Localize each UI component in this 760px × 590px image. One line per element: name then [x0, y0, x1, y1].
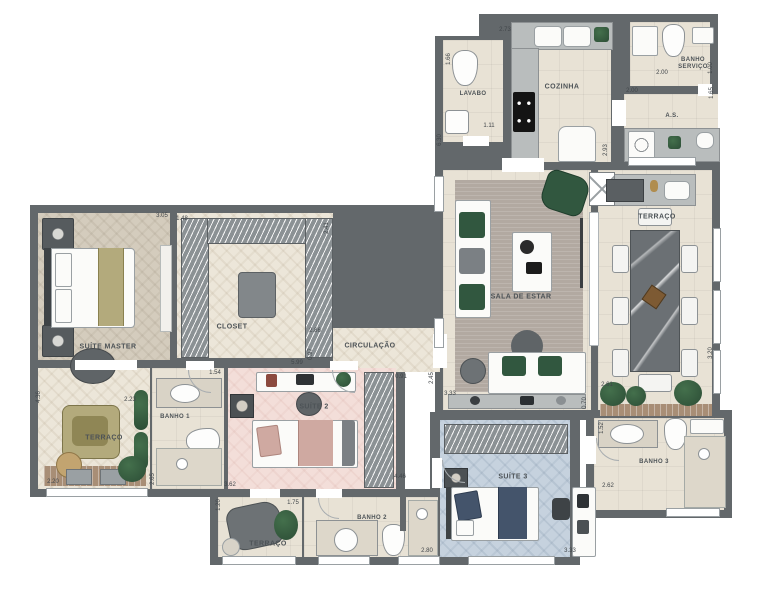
pillow [456, 520, 474, 536]
console-decor [520, 396, 534, 405]
console-decor [556, 396, 566, 405]
table-decor [520, 240, 534, 254]
dimension-label: 0.91 [395, 374, 407, 380]
room-label-suite-master: SUÍTE MASTER [80, 344, 137, 351]
window [434, 318, 444, 348]
sofa-cushion [459, 248, 485, 274]
kitchen-sink [563, 26, 591, 47]
sofa-cushion [502, 356, 526, 376]
dimension-label: 1.11 [483, 123, 494, 129]
dining-chair [612, 349, 629, 377]
dining-chair [681, 349, 698, 377]
door-opening [502, 158, 544, 172]
pillow [256, 425, 282, 458]
room-label-terraco-right: TERRAÇO [638, 214, 675, 221]
washing-machine [628, 131, 655, 159]
pillow [55, 253, 72, 287]
kitchen-sink [534, 26, 562, 47]
monitor [577, 494, 589, 508]
cooktop [513, 92, 535, 132]
dimension-label: 4.46 [394, 474, 406, 480]
room-label-banho3: BANHO 3 [639, 459, 669, 465]
dimension-label: 2.00 [626, 88, 638, 94]
room-label-lavabo: LAVABO [460, 91, 487, 97]
nightstand [42, 218, 74, 250]
dimension-label: 1.65 [709, 87, 715, 99]
room-label-terraco-left: TERRAÇO [85, 435, 122, 442]
dimension-label: 1.66 [446, 53, 452, 65]
dimension-label: 3.20 [708, 347, 714, 359]
bed-footboard [342, 420, 355, 466]
nightstand [42, 325, 74, 357]
dimension-label: 1.54 [209, 370, 221, 376]
plant [674, 380, 702, 406]
tv-wall-panel [160, 245, 172, 332]
dimension-label: 2.23 [124, 397, 136, 403]
tv-panel [580, 218, 583, 288]
dimension-label: 2.41 [324, 222, 330, 234]
dimension-label: 0.70 [582, 397, 588, 409]
shower [156, 448, 222, 486]
counter-decor [650, 180, 658, 192]
window [666, 508, 720, 517]
room-label-suite3: SUÍTE 3 [498, 474, 527, 481]
wardrobe [207, 218, 307, 244]
wardrobe [444, 424, 568, 454]
window [713, 228, 721, 282]
desk-chair [552, 498, 570, 520]
pillow [55, 289, 72, 323]
door-opening [463, 136, 489, 146]
desk-decor [577, 520, 589, 534]
dimension-label: 2.73 [499, 27, 511, 33]
sliding-glass-door [589, 212, 599, 346]
dimension-label: 3.33 [444, 391, 456, 397]
window [628, 157, 696, 166]
door-opening [330, 361, 358, 370]
console-decor [470, 396, 480, 405]
dimension-label: 1.20 [216, 499, 222, 511]
sofa-cushion [459, 284, 485, 310]
dimension-label: 2.65 [150, 473, 156, 485]
wall-step [435, 14, 479, 36]
shower-partition [400, 497, 406, 531]
kitchen-island [558, 126, 596, 162]
wardrobe [364, 372, 394, 488]
shower-drain [176, 458, 188, 470]
bed-runner [98, 248, 124, 326]
ottoman [238, 272, 276, 318]
window [398, 556, 440, 565]
plant [626, 386, 646, 406]
planter-pot [66, 469, 92, 485]
room-label-banho1: BANHO 1 [160, 414, 190, 420]
room-label-sala: SALA DE ESTAR [491, 294, 552, 301]
window [434, 176, 444, 212]
dimension-label: 3.33 [564, 548, 576, 554]
dining-chair [681, 297, 698, 325]
dimension-label: 1.48 [176, 216, 188, 222]
door-opening [75, 360, 137, 370]
shower [632, 26, 658, 56]
plant [668, 136, 681, 149]
dimension-label: 2.86 [309, 328, 321, 334]
wardrobe [305, 218, 333, 358]
laptop [296, 374, 314, 385]
room-label-circulacao: CIRCULAÇÃO [344, 343, 395, 350]
sink [445, 110, 469, 134]
wardrobe [181, 218, 209, 358]
pillow [454, 490, 482, 522]
sink [696, 132, 714, 149]
desk-decor [266, 374, 277, 387]
dimension-label: 2.62 [602, 483, 614, 489]
bed-headboard [44, 248, 51, 326]
dimension-label: 6.30 [437, 134, 443, 146]
floor-plan: SUÍTE MASTER CLOSET CIRCULAÇÃO TERRAÇO B… [0, 0, 760, 590]
side-table [222, 538, 240, 556]
lounge-cushion [72, 416, 108, 446]
dimension-label: 4.36 [36, 391, 42, 403]
dining-chair [612, 297, 629, 325]
door-opening [250, 489, 280, 498]
window [468, 556, 555, 565]
door-opening [186, 361, 214, 370]
window [713, 290, 721, 344]
room-label-cozinha: COZINHA [545, 84, 580, 91]
dimension-label: 2.20 [47, 479, 59, 485]
window [318, 556, 370, 565]
door-opening [586, 436, 596, 464]
sink [334, 528, 358, 552]
room-label-suite2: SUÍTE 2 [299, 404, 328, 411]
dimension-label: 5.99 [291, 360, 303, 366]
dimension-label: 2.93 [603, 144, 609, 156]
sofa-cushion [538, 356, 562, 376]
sink [664, 181, 690, 200]
dimension-label: 3.62 [224, 482, 236, 488]
dimension-label: 0.97 [308, 348, 314, 360]
floor-lamp [460, 358, 486, 384]
dimension-label: 1.75 [287, 500, 299, 506]
grill [606, 179, 644, 202]
window [222, 556, 296, 565]
shower [684, 436, 726, 508]
dimension-label: 2.61 [601, 382, 613, 388]
door-opening [612, 100, 626, 126]
room-label-terraco-bottom: TERRAÇO [249, 541, 286, 548]
plant [118, 456, 146, 482]
shelf [690, 419, 724, 434]
planter-box [600, 404, 712, 416]
room-label-as: A.S. [665, 113, 678, 119]
dimension-label: 1.52 [599, 422, 605, 434]
room-label-banho2: BANHO 2 [357, 515, 387, 521]
table-decor [526, 262, 542, 274]
dimension-label: 3.05 [156, 213, 168, 219]
window [46, 488, 148, 497]
side-table [230, 394, 254, 418]
window [713, 350, 721, 394]
dimension-label: 1.00 [708, 62, 714, 74]
sink [692, 27, 714, 44]
shower-drain [416, 508, 428, 520]
bed-blanket [298, 420, 333, 466]
dimension-label: 2.80 [421, 548, 433, 554]
dimension-label: 2.45 [429, 372, 435, 384]
dining-chair [612, 245, 629, 273]
sofa-cushion [459, 212, 485, 238]
plant [594, 27, 609, 42]
shower-drain [698, 448, 710, 460]
plant [274, 510, 298, 540]
room-label-closet: CLOSET [217, 324, 248, 331]
dimension-label: 2.00 [656, 70, 668, 76]
dining-chair [681, 245, 698, 273]
plant [134, 390, 148, 430]
door-opening [316, 489, 342, 498]
bed-blanket [498, 487, 527, 539]
door-opening [432, 458, 442, 488]
